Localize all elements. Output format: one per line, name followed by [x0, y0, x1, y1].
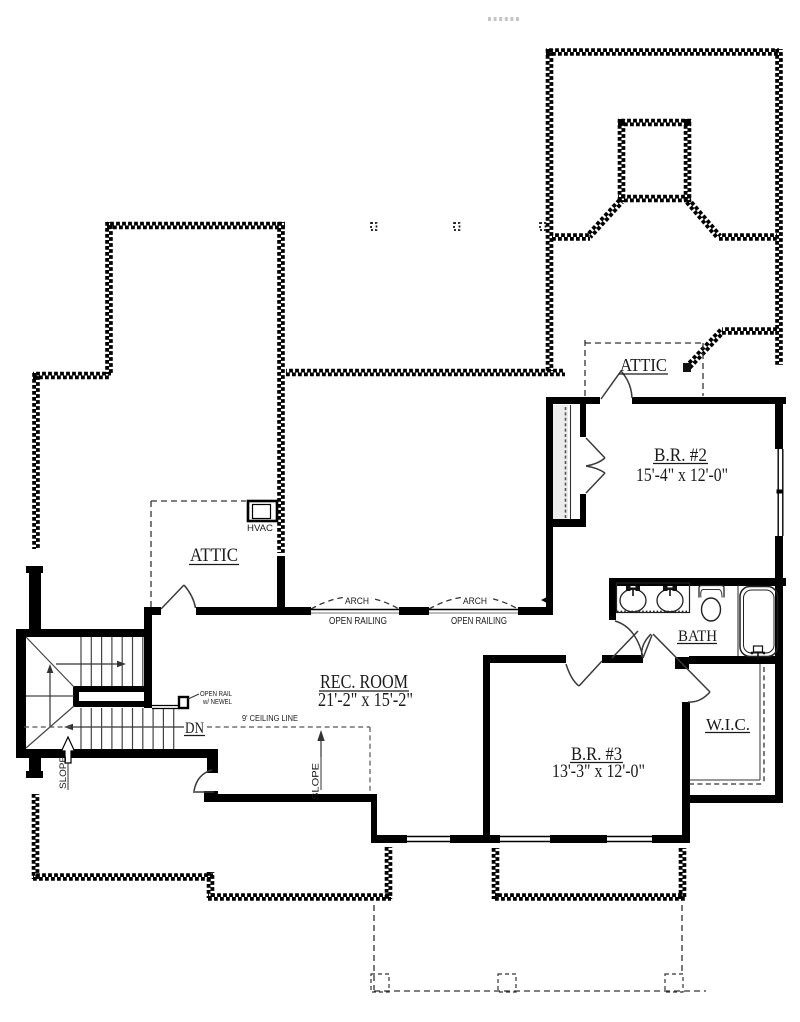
- svg-text:13'-3" x 12'-0": 13'-3" x 12'-0": [552, 761, 645, 782]
- svg-text:21'-2" x 15'-2": 21'-2" x 15'-2": [318, 689, 413, 711]
- svg-text:SLOPE: SLOPE: [311, 763, 322, 800]
- svg-text:ARCH: ARCH: [463, 596, 487, 607]
- svg-text:ATTIC: ATTIC: [620, 355, 667, 375]
- svg-text:15'-4" x 12'-0": 15'-4" x 12'-0": [636, 465, 728, 486]
- svg-text:9' CEILING LINE: 9' CEILING LINE: [242, 713, 298, 723]
- svg-text:OPEN RAILING: OPEN RAILING: [451, 616, 507, 627]
- svg-text:ARCH: ARCH: [345, 596, 369, 607]
- svg-text:SLOPE: SLOPE: [58, 756, 69, 789]
- svg-text:DN: DN: [185, 720, 204, 737]
- svg-text:OPEN RAILING: OPEN RAILING: [329, 616, 387, 627]
- svg-text:ATTIC: ATTIC: [190, 545, 238, 566]
- svg-text:HVAC: HVAC: [247, 523, 273, 534]
- svg-text:BATH: BATH: [678, 628, 717, 645]
- svg-text:w/ NEWEL: w/ NEWEL: [202, 697, 232, 706]
- svg-text:W.I.C.: W.I.C.: [706, 715, 750, 734]
